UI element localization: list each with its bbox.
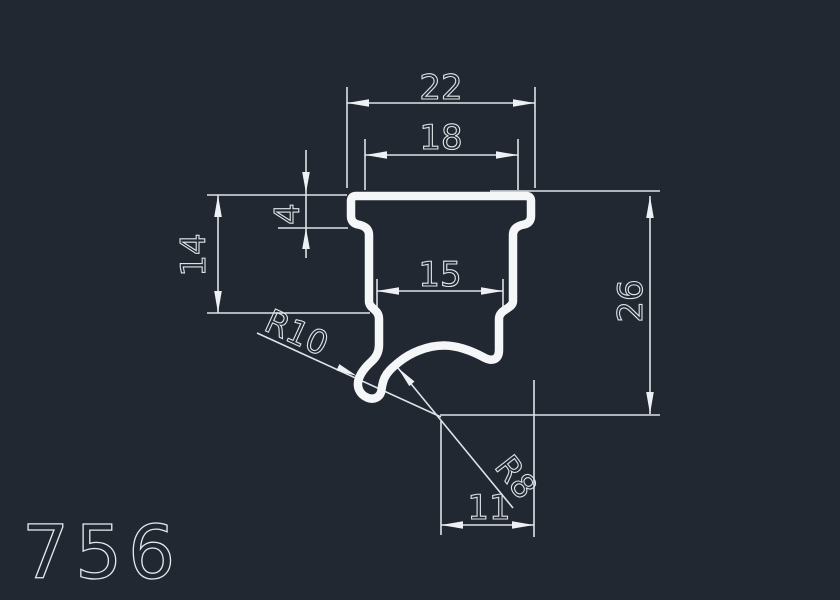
dimension-overall-height: 26 (440, 191, 660, 415)
arrowhead-up-icon (214, 195, 222, 217)
arrowhead-right-icon (512, 521, 534, 529)
dimension-neck-width: 15 (377, 255, 503, 308)
cad-canvas: 22 18 14 4 15 (0, 0, 840, 600)
arrowhead-right-icon (513, 99, 535, 107)
radius-dimension-r10: R10 (257, 301, 441, 417)
arrowhead-down-icon (302, 172, 310, 193)
arrowhead-left-icon (347, 99, 369, 107)
arrowhead-left-icon (365, 151, 387, 159)
dimension-value: 14 (174, 233, 214, 276)
dimension-lip-height: 4 (268, 150, 348, 258)
arrowhead-left-icon (441, 521, 463, 529)
arrowhead-right-icon (481, 287, 503, 295)
dimension-upper-inner-width: 18 (365, 118, 518, 190)
dimension-value: 18 (419, 118, 462, 158)
radius-dimension-r8: R8 (398, 368, 545, 508)
arrowhead-down-icon (214, 291, 222, 313)
dimension-value: 22 (419, 68, 462, 108)
radius-value: R10 (259, 301, 334, 363)
arrowhead-down-icon (646, 392, 654, 414)
cad-drawing: 22 18 14 4 15 (0, 0, 840, 600)
leader-line (398, 368, 513, 508)
dimension-value: 15 (418, 255, 461, 295)
dimension-value: 11 (467, 488, 510, 528)
arrowhead-up-icon (646, 196, 654, 218)
arrowhead-icon (398, 368, 415, 386)
dimension-value: 4 (268, 203, 308, 225)
arrowhead-up-icon (302, 228, 310, 249)
arrowhead-right-icon (496, 151, 518, 159)
arrowhead-left-icon (377, 287, 399, 295)
part-number: 756 (22, 510, 181, 596)
profile-outline (351, 196, 531, 399)
dimension-value: 26 (611, 279, 651, 322)
